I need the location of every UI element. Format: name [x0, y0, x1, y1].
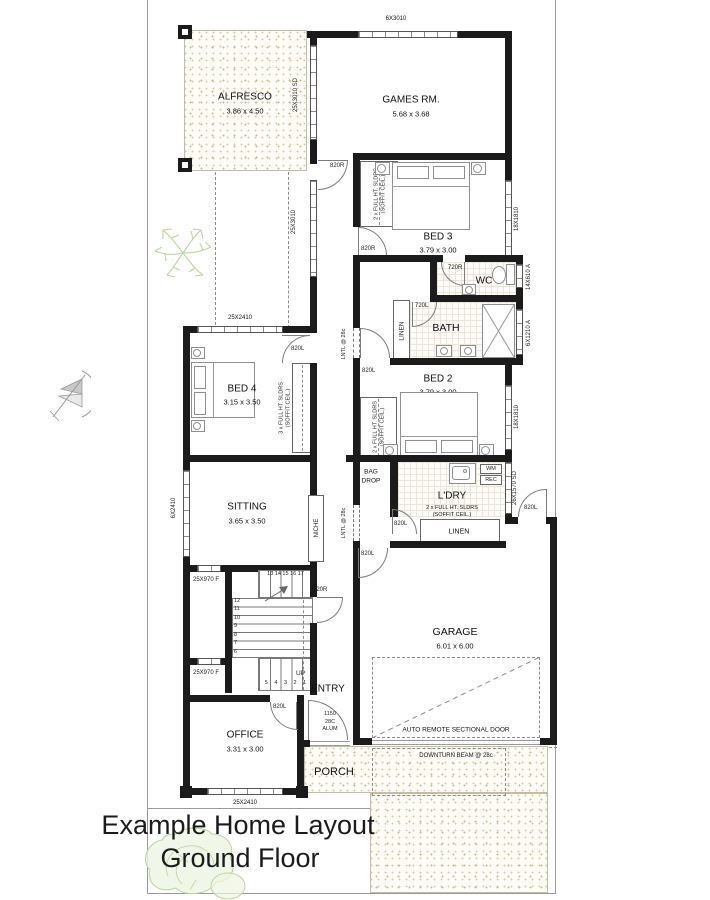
window-label: 6X2410 — [171, 498, 177, 519]
bed3-label: BED 3 — [424, 232, 453, 243]
garage-door-note: AUTO REMOTE SECTIONAL DOOR — [400, 727, 511, 734]
tap — [463, 469, 467, 473]
window-label: 25X2410 — [233, 800, 257, 806]
linen-label: LINEN — [399, 321, 406, 340]
pillow — [441, 440, 473, 453]
window-label: 25X3010 — [291, 210, 297, 234]
blanket-line — [213, 362, 214, 418]
robe-note-line: (SOFFIT CEIL.) — [380, 175, 386, 213]
driveway-zone — [372, 748, 506, 796]
stair-number: 11 — [234, 607, 240, 613]
alfresco-label: ALFRESCO — [218, 92, 272, 103]
window-label: 26X1570 SD — [512, 471, 518, 505]
pillow — [405, 440, 437, 453]
door-leaf — [360, 328, 361, 358]
window-18x1810 — [505, 385, 512, 450]
front-door-course: 28C — [325, 719, 335, 725]
sitting-dims: 3.65 x 3.50 — [228, 517, 265, 526]
lamp — [481, 446, 490, 455]
wall-segment — [183, 326, 197, 333]
window-25x3010 — [310, 180, 317, 277]
wall-segment — [225, 572, 232, 693]
door-label: 820L — [361, 551, 374, 557]
alfresco-post — [178, 25, 192, 39]
alfresco-dims: 3.86 x 4.50 — [226, 107, 263, 116]
laundry-label: L'DRY — [438, 491, 466, 502]
wall-segment — [390, 541, 506, 548]
stair-number: 6 — [234, 650, 237, 656]
window-label: 25X3010 SD — [293, 78, 299, 112]
window-label: 25X970 F — [193, 577, 219, 583]
wall-segment — [430, 262, 437, 302]
lintel-opening — [353, 328, 360, 358]
front-door-label: 1150 28C ALUM — [317, 711, 343, 734]
wall-segment — [465, 255, 505, 262]
lamp — [473, 164, 482, 173]
niche-label: NICHE — [314, 519, 320, 538]
games-label: GAMES RM. — [382, 95, 439, 106]
wall-segment — [437, 295, 523, 302]
wall-segment — [346, 455, 512, 462]
stair-mid-flight — [232, 598, 313, 658]
window-label: 6X3010 — [386, 16, 407, 22]
wall-segment — [546, 517, 557, 524]
door-leaf — [358, 548, 359, 578]
bath-label: BATH — [432, 322, 459, 334]
wall-segment — [183, 557, 190, 788]
wall-segment — [183, 695, 270, 702]
wall-segment — [390, 358, 512, 365]
door-label: 720R — [313, 587, 327, 593]
stair-number: 10 — [234, 616, 240, 622]
door-arc — [518, 489, 546, 517]
site-boundary-right — [555, 0, 556, 893]
bed4-dims: 3.15 x 3.50 — [223, 398, 260, 407]
pillow — [194, 392, 206, 415]
window-6x1210 — [516, 309, 523, 355]
porch-label: PORCH — [314, 766, 354, 778]
laundry-note: 2 x FULL HT. SLDRS — [426, 505, 478, 511]
garage-opening-line — [372, 740, 540, 741]
window-25x2410 — [197, 326, 283, 333]
wall-segment — [353, 462, 360, 505]
alfresco-post — [178, 158, 192, 172]
linen-label: LINEN — [449, 529, 470, 536]
robe-note-line: 2 x FULL HT. SLDRS — [372, 401, 378, 453]
window-6x2410 — [183, 470, 190, 557]
door-leaf — [412, 302, 413, 327]
wall-segment — [505, 517, 518, 524]
door-label: 820L — [362, 368, 375, 374]
wall-segment — [353, 153, 512, 160]
robe-note-line: (SOFFIT CEIL.) — [379, 408, 385, 446]
lamp — [377, 164, 386, 173]
lintel-label: LNTL @ 28c — [341, 329, 347, 360]
plan-subtitle: Ground Floor — [160, 843, 319, 874]
wall-segment — [353, 262, 360, 328]
bed4-label: BED 4 — [228, 384, 257, 395]
wall-segment — [183, 333, 190, 470]
window-label: 14X610 A — [526, 264, 532, 290]
robe-note-line: 2 x FULL HT. SLDRS — [373, 168, 379, 220]
window-18x1810 — [505, 180, 512, 258]
toilet-bowl — [492, 266, 506, 284]
door-label: 820R — [330, 163, 344, 169]
wall-segment — [297, 740, 310, 747]
door-leaf — [546, 489, 547, 517]
garage-label: GARAGE — [433, 626, 478, 638]
window-25x3010sd — [310, 45, 317, 140]
lamp — [385, 446, 394, 455]
robe-note: 2 x FULL HT. SLDRS (SOFFIT CEIL.) — [373, 168, 386, 220]
driveway — [370, 793, 548, 893]
wall-segment — [516, 255, 523, 264]
window-label: 18X1810 — [514, 405, 520, 429]
lamp — [193, 422, 201, 430]
wall-segment — [505, 31, 512, 160]
shower-x-icon — [482, 304, 515, 358]
door-label: 720R — [448, 265, 462, 271]
basin-bowl — [465, 286, 473, 294]
wm-recess: REC — [480, 475, 502, 485]
corner-post — [180, 786, 192, 798]
wm-recess: WM — [480, 464, 502, 474]
games-dims: 5.68 x 3.68 — [392, 110, 429, 119]
door-label: 820L — [394, 521, 407, 527]
corner-post — [296, 786, 308, 798]
door-leaf — [317, 597, 343, 598]
blanket-line — [392, 186, 470, 187]
front-door-leaf — [308, 700, 309, 740]
wall-segment — [310, 277, 317, 333]
tree-icon — [147, 217, 219, 289]
window-label: 18X1810 — [514, 207, 520, 231]
window-label: 25X970 F — [193, 670, 219, 676]
door-leaf — [318, 160, 348, 161]
wall-segment — [505, 160, 512, 180]
basin-bowl — [464, 347, 472, 355]
wall-segment — [353, 358, 360, 462]
lintel-opening — [353, 505, 360, 541]
basin-bowl — [440, 347, 448, 355]
eave-line — [288, 172, 289, 328]
window-25x970 — [197, 565, 221, 572]
door-leaf — [296, 702, 297, 730]
wall-segment — [310, 31, 317, 45]
laundry-note: (SOFFIT CEIL.) — [433, 512, 471, 518]
robe-note: 3 x FULL HT. SLDRS (SOFFIT CEIL.) — [278, 382, 291, 434]
front-door-material: ALUM — [322, 726, 337, 732]
title-divider-line — [148, 808, 372, 809]
lintel-label: LNTL @ 28c — [341, 508, 347, 539]
stair-direction-arrow — [262, 582, 292, 604]
floor-plan: ALFRESCO 3.86 x 4.50 GAMES RM. 5.68 x 3.… — [0, 0, 710, 900]
eave-line — [215, 172, 216, 330]
plan-title: Example Home Layout — [101, 810, 374, 841]
bed2-label: BED 2 — [424, 374, 453, 385]
wall-segment — [550, 524, 557, 745]
robe-note-line: (SOFFIT CEIL.) — [285, 389, 291, 427]
window-label: 6X1210 A — [526, 320, 532, 346]
door-leaf — [358, 227, 359, 256]
entry-label: ENTRY — [311, 684, 345, 695]
door-leaf — [392, 509, 393, 534]
sitting-label: SITTING — [227, 502, 266, 513]
lamp — [193, 349, 201, 357]
bagdrop-label: DROP — [362, 478, 381, 485]
threshold-line — [310, 741, 350, 742]
stair-number: 8 — [234, 633, 237, 639]
stair-numbers: 13 14 15 16 17 — [258, 572, 313, 578]
survey-marker-icon — [49, 365, 91, 423]
stair-number: 7 — [234, 641, 237, 647]
door-arc — [360, 328, 390, 358]
wc-label: WC — [476, 276, 493, 287]
stair-numbers: 5 4 3 2 1 — [258, 681, 313, 687]
wall-segment — [540, 738, 557, 745]
pillow — [397, 166, 429, 179]
door-arc — [317, 597, 343, 623]
threshold-line — [310, 745, 350, 746]
door-label: 820L — [273, 704, 286, 710]
blanket-line — [400, 436, 478, 437]
bagdrop-label: BAG — [364, 469, 378, 476]
toilet-cistern — [506, 264, 515, 285]
wall-segment — [353, 255, 443, 262]
pillow — [433, 166, 465, 179]
front-door-size: 1150 — [324, 711, 336, 717]
window-label: 25X2410 — [228, 315, 252, 321]
site-boundary-left — [147, 0, 148, 893]
trough-bowl — [452, 466, 470, 480]
window-25x970 — [197, 658, 221, 665]
pillow — [194, 366, 206, 389]
window-26x1570 — [505, 462, 512, 514]
wall-segment — [505, 358, 512, 385]
bed3-dims: 3.79 x 3.00 — [419, 246, 456, 255]
wall-segment — [283, 326, 317, 333]
window-25x2410 — [207, 788, 283, 795]
door-label: 820L — [291, 346, 304, 352]
wall-segment — [353, 738, 372, 745]
window-14x610 — [516, 264, 523, 288]
garage-opening-line — [372, 744, 540, 745]
door-leaf — [282, 335, 310, 336]
robe-note-line: 3 x FULL HT. SLDRS — [278, 382, 284, 434]
wall-segment — [183, 455, 317, 462]
robe-slider-line — [302, 365, 303, 451]
door-label: 820L — [524, 505, 537, 511]
wall-segment — [310, 140, 317, 164]
door-label: 820R — [361, 246, 375, 252]
wall-segment — [353, 160, 360, 227]
door-label: 720L — [415, 303, 428, 309]
stair-number: 9 — [234, 624, 237, 630]
office-dims: 3.31 x 3.00 — [226, 745, 263, 754]
wall-segment — [458, 31, 512, 38]
garage-dims: 6.01 x 6.00 — [436, 642, 473, 651]
window-6x3010 — [358, 31, 458, 38]
stair-number: 12 — [234, 599, 240, 605]
door-leaf — [464, 262, 465, 286]
stair-void-line — [303, 600, 304, 690]
office-label: OFFICE — [227, 730, 264, 741]
wall-segment — [310, 363, 317, 495]
